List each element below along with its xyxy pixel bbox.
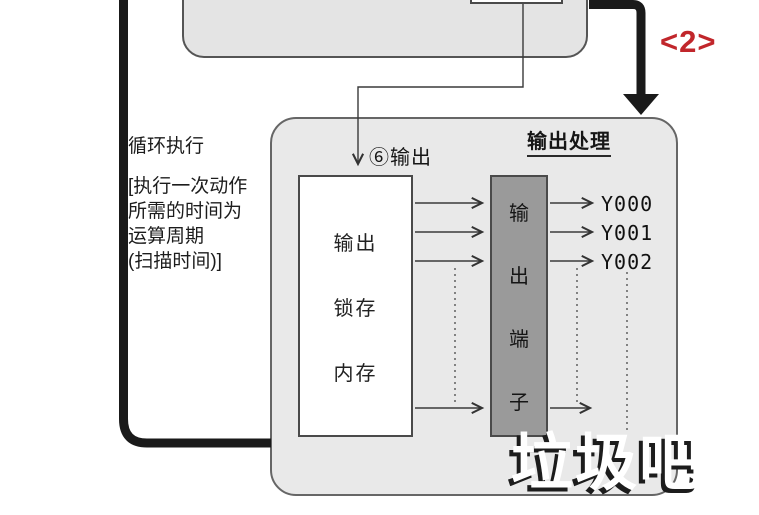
step-arrow-line <box>589 5 641 97</box>
terminal-box-char: 出 <box>509 260 529 289</box>
plc-scan-cycle-diagram: { "colors": { "accent-red": "#c1262b", "… <box>0 0 759 515</box>
cycle-label: 循环执行 <box>128 134 270 159</box>
output-processing-title: 输出处理 <box>527 125 611 157</box>
step-arrow-head <box>623 94 659 115</box>
output-label-y001: Y001 <box>601 221 653 245</box>
latch-box-line: 锁存 <box>334 292 378 321</box>
output-label-y000: Y000 <box>601 192 653 216</box>
cycle-note-line: (扫描时间)] <box>128 249 270 274</box>
step-6-output-label: ⑥输出 <box>369 141 432 170</box>
latch-box-line: 输出 <box>334 227 378 256</box>
terminal-box-char: 输 <box>509 197 529 226</box>
cycle-annotation: 循环执行 [执行一次动作 所需的时间为 运算周期 (扫描时间)] <box>128 134 270 274</box>
cycle-note: [执行一次动作 所需的时间为 运算周期 (扫描时间)] <box>128 174 270 274</box>
output-terminal-box: 输 出 端 子 <box>490 175 548 437</box>
step-2-tag: <2> <box>660 24 716 60</box>
output-latch-memory-box: 输出 锁存 内存 <box>298 175 413 437</box>
latch-box-line: 内存 <box>334 357 378 386</box>
previous-step-inner-box <box>470 0 563 4</box>
cycle-note-line: [执行一次动作 <box>128 174 270 199</box>
cycle-note-line: 运算周期 <box>128 224 270 249</box>
watermark-text: 垃圾吧 <box>511 412 703 502</box>
output-label-y002: Y002 <box>601 250 653 274</box>
terminal-box-char: 端 <box>509 323 529 352</box>
cycle-note-line: 所需的时间为 <box>128 199 270 224</box>
previous-step-box <box>182 0 588 58</box>
terminal-box-char: 子 <box>509 386 529 415</box>
